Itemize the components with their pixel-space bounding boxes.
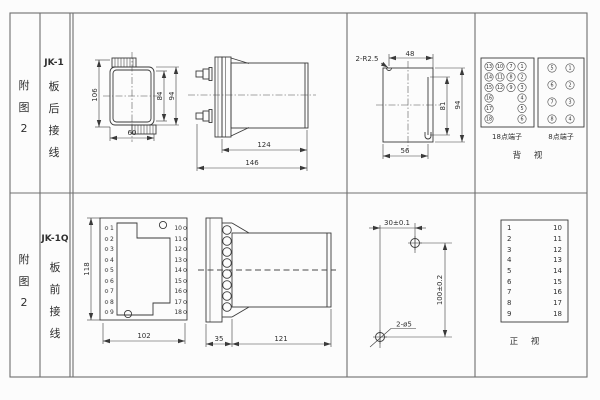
dim-label: 146	[245, 159, 259, 167]
terminal-number: 12	[174, 246, 182, 253]
terminal-number: 17	[486, 106, 492, 112]
terminal-number: 13	[553, 256, 562, 264]
terminal-number: 12	[497, 85, 503, 91]
dim-label: 94	[454, 100, 462, 109]
wiring-label-char: 后	[49, 102, 60, 115]
terminal-number: 13	[174, 257, 182, 264]
dim-label: 56	[401, 147, 410, 155]
jk1q-front-view: 1 2 3 4 5 6 7 8 9 10 11 12 13 14 15 16 1…	[83, 218, 187, 344]
terminal-screw	[196, 68, 212, 81]
terminal-block-8: 5 1 6 2 7 3 8 4 8点端子	[538, 58, 584, 141]
terminal-number: 8	[550, 117, 553, 123]
terminal-number: 17	[553, 299, 562, 307]
wiring-label-char: 线	[50, 326, 61, 340]
figure-label-char: 附	[19, 252, 30, 266]
terminal-number: 5	[550, 66, 553, 72]
technical-drawing: 附 图 2 JK-1 板 后 接 线 106 84 94	[0, 0, 600, 400]
terminal-number: 18	[486, 117, 492, 123]
terminal-number: 2	[110, 236, 114, 243]
dimension-146: 146	[197, 124, 307, 171]
terminal-number: 7	[509, 64, 512, 70]
hole-label: 2-ø5	[396, 321, 412, 329]
terminal-number: 9	[507, 310, 511, 318]
terminal-block-18: 13 10 7 1 14 11 8 2 15 12 9 3 16 4 17 5 …	[481, 58, 534, 141]
terminal-number: 16	[486, 96, 492, 102]
relay-footprint-outline	[117, 223, 170, 315]
left-terminal-column: 1 2 3 4 5 6 7 8 9	[105, 225, 114, 316]
terminal-number: 7	[550, 100, 553, 106]
terminal8-caption: 8点端子	[548, 132, 573, 141]
terminal-number: 14	[174, 267, 182, 274]
wiring-label-char: 接	[49, 124, 60, 137]
figure-label-char: 图	[19, 101, 30, 114]
terminal-number: 3	[568, 100, 571, 106]
terminal-number: 10	[497, 64, 503, 70]
terminal-number: 7	[507, 288, 511, 296]
terminal-number: 7	[110, 288, 114, 295]
dimension-106: 106	[91, 60, 110, 127]
terminal-number: 13	[486, 64, 492, 70]
terminal-number: 4	[520, 96, 523, 102]
terminal-number: 14	[553, 267, 562, 275]
terminal-number: 8	[507, 299, 511, 307]
terminal-number: 10	[553, 224, 562, 232]
dim-label: 118	[83, 262, 91, 275]
terminal-screw	[196, 110, 212, 123]
dimension-84: 84	[156, 71, 167, 121]
terminal-number: 4	[110, 257, 114, 264]
terminal-number: 8	[110, 299, 114, 306]
terminal-number: 18	[174, 309, 182, 316]
terminal-number: 18	[553, 310, 562, 318]
dim-label: 100±0.2	[436, 275, 444, 305]
figure-label-char: 2	[21, 122, 28, 135]
wiring-label-char: 板	[49, 79, 60, 93]
terminal-number: 5	[507, 267, 511, 275]
dim-label: 121	[274, 335, 287, 343]
terminal-number: 14	[486, 75, 492, 81]
terminal-number: 3	[507, 246, 511, 254]
terminal-number: 6	[520, 117, 523, 123]
terminal-number: 8	[509, 75, 512, 81]
dim-label: 84	[156, 91, 164, 100]
dim-label: 35	[215, 335, 224, 343]
terminal-number: 15	[174, 278, 182, 285]
dim-label: 81	[439, 102, 447, 111]
radius-callout: 2-R2.5	[356, 55, 388, 68]
terminal-number: 2	[507, 235, 511, 243]
terminal-number: 16	[553, 288, 562, 296]
terminal-circles	[485, 62, 526, 123]
wiring-label-char: 接	[50, 305, 61, 318]
terminal-number: 3	[520, 85, 523, 91]
terminal18-caption: 18点端子	[492, 132, 522, 141]
wiring-label-char: 板	[50, 260, 61, 274]
terminal-number: 15	[486, 85, 492, 91]
jk1q-side-view: 35 121	[198, 218, 336, 347]
terminal-number: 6	[550, 83, 553, 89]
terminal-table: 1 2 3 4 5 6 7 8 9 10 11 12 13 14 15 16 1…	[501, 220, 568, 347]
terminal-number: 15	[553, 278, 562, 286]
terminal-circles	[548, 64, 574, 123]
jk1-front-view: 106 84 94 60	[91, 52, 179, 142]
jk1-panel-cutout-view: 2-R2.5 48 81 94 56	[356, 50, 465, 159]
terminal-number: 1	[110, 225, 114, 232]
terminal-number: 1	[568, 66, 571, 72]
terminal-number: 16	[174, 288, 182, 295]
terminal-number: 10	[174, 225, 182, 232]
dim-label: 102	[137, 332, 150, 340]
terminal-number: 11	[553, 235, 562, 243]
terminal-number: 4	[568, 117, 571, 123]
figure-label-char: 附	[19, 78, 30, 92]
jk1q-drilling-plan: 30±0.1 100±0.2 2-ø5	[369, 219, 452, 348]
wiring-label-char: 前	[50, 282, 61, 296]
dim-label: 60	[128, 129, 137, 137]
terminal-number: 2	[520, 75, 523, 81]
terminal-number: 9	[509, 85, 512, 91]
terminal-number: 11	[174, 236, 182, 243]
dimension-124: 124	[222, 130, 307, 171]
wiring-label-char: 线	[49, 145, 60, 159]
dimension-118: 118	[83, 218, 100, 320]
terminal-number: 6	[507, 278, 512, 286]
back-view-caption: 背 视	[513, 150, 548, 161]
terminal-number: 6	[110, 278, 114, 285]
dimension-48: 48	[389, 50, 433, 68]
radius-label: 2-R2.5	[356, 55, 379, 63]
figure-label-char: 2	[21, 296, 28, 309]
dimension-121: 121	[232, 309, 331, 347]
terminal-number: 12	[553, 246, 562, 254]
terminal-number: 11	[497, 75, 503, 81]
terminal-screws-column	[223, 226, 232, 312]
terminal-number: 3	[110, 246, 114, 253]
terminal-number: 2	[568, 83, 571, 89]
model-label: JK-1	[43, 58, 64, 68]
figure-label-char: 图	[19, 275, 30, 288]
dim-label: 106	[91, 88, 99, 102]
drawing-sheet: 附 图 2 JK-1 板 后 接 线 106 84 94	[0, 0, 600, 400]
mounting-hole	[159, 221, 166, 228]
dimension-30: 30±0.1	[369, 219, 426, 228]
mounting-hole	[124, 310, 131, 317]
row2-header: 附 图 2 JK-1Q 板 前 接 线	[19, 234, 69, 340]
dimension-102: 102	[103, 323, 185, 344]
terminal-number: 5	[520, 106, 523, 112]
terminal-number: 4	[507, 256, 512, 264]
dim-label: 124	[257, 141, 271, 149]
row1-header: 附 图 2 JK-1 板 后 接 线	[19, 58, 64, 159]
dimension-56: 56	[383, 144, 428, 159]
terminal-number: 17	[174, 299, 182, 306]
terminal-number: 1	[520, 64, 523, 70]
terminal-number: 5	[110, 267, 114, 274]
dim-label: 48	[406, 50, 415, 58]
mounting-rail-top	[112, 58, 136, 67]
dimension-100: 100±0.2	[436, 243, 445, 337]
dim-label: 94	[168, 91, 176, 100]
model-label: JK-1Q	[40, 234, 69, 244]
terminal-number: 9	[110, 309, 114, 316]
terminal-number: 1	[507, 224, 511, 232]
dimension-35: 35	[206, 319, 232, 347]
dim-label: 30±0.1	[384, 219, 410, 227]
right-terminal-column: 10 11 12 13 14 15 16 17 18	[174, 225, 186, 316]
jk1-side-view: 124 146	[188, 57, 316, 171]
front-view-caption: 正 视	[510, 336, 545, 347]
